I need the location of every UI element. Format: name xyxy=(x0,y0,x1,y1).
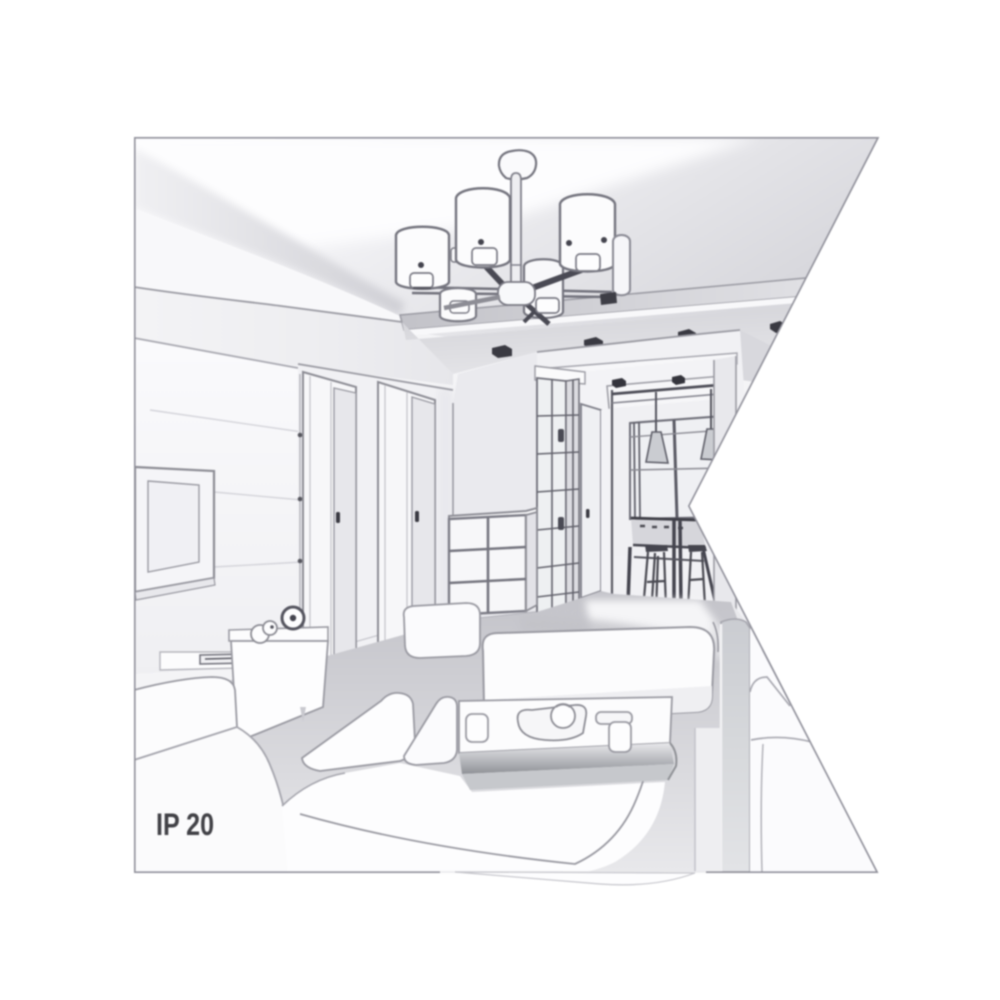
svg-text:IP 20: IP 20 xyxy=(156,806,214,842)
